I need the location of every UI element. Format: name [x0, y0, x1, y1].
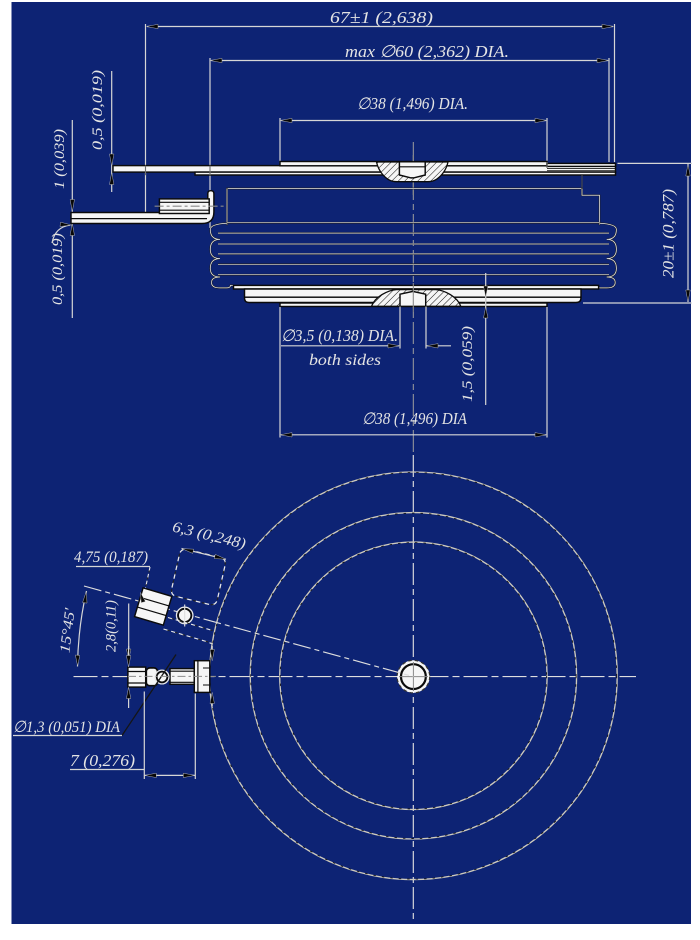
svg-text:max ∅60 (2,362) DIA.: max ∅60 (2,362) DIA.	[345, 42, 509, 61]
svg-text:20±1 (0,787): 20±1 (0,787)	[661, 189, 678, 278]
svg-text:0,5 (0,019): 0,5 (0,019)	[90, 70, 106, 150]
svg-text:67±1 (2,638): 67±1 (2,638)	[330, 8, 433, 27]
svg-text:1 (0,039): 1 (0,039)	[52, 129, 68, 189]
svg-text:∅3,5 (0,138) DIA.: ∅3,5 (0,138) DIA.	[281, 326, 398, 345]
svg-text:4,75 (0,187): 4,75 (0,187)	[74, 549, 148, 566]
svg-text:∅38 (1,496) DIA: ∅38 (1,496) DIA	[362, 409, 468, 428]
svg-text:2,8(0,11): 2,8(0,11)	[104, 600, 120, 652]
svg-text:7 (0,276): 7 (0,276)	[70, 751, 135, 770]
svg-text:∅38 (1,496) DIA.: ∅38 (1,496) DIA.	[357, 94, 468, 113]
svg-text:∅1,3 (0,051) DIA: ∅1,3 (0,051) DIA	[13, 719, 120, 736]
svg-text:both sides: both sides	[309, 352, 381, 369]
svg-text:1,5 (0,059): 1,5 (0,059)	[460, 326, 476, 402]
svg-text:0,5 (0,019): 0,5 (0,019)	[50, 233, 66, 305]
